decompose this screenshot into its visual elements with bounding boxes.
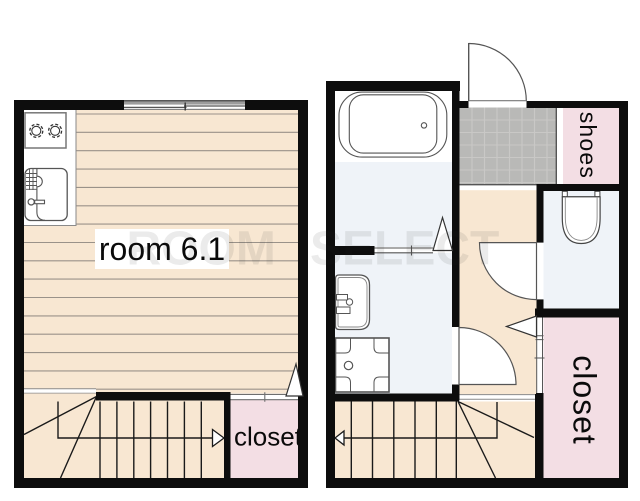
svg-text:closet: closet bbox=[567, 355, 603, 445]
svg-text:closet: closet bbox=[234, 422, 303, 452]
svg-text:SELECT: SELECT bbox=[310, 223, 499, 276]
svg-text:shoes: shoes bbox=[575, 112, 601, 179]
svg-text:ROOM: ROOM bbox=[127, 223, 276, 276]
